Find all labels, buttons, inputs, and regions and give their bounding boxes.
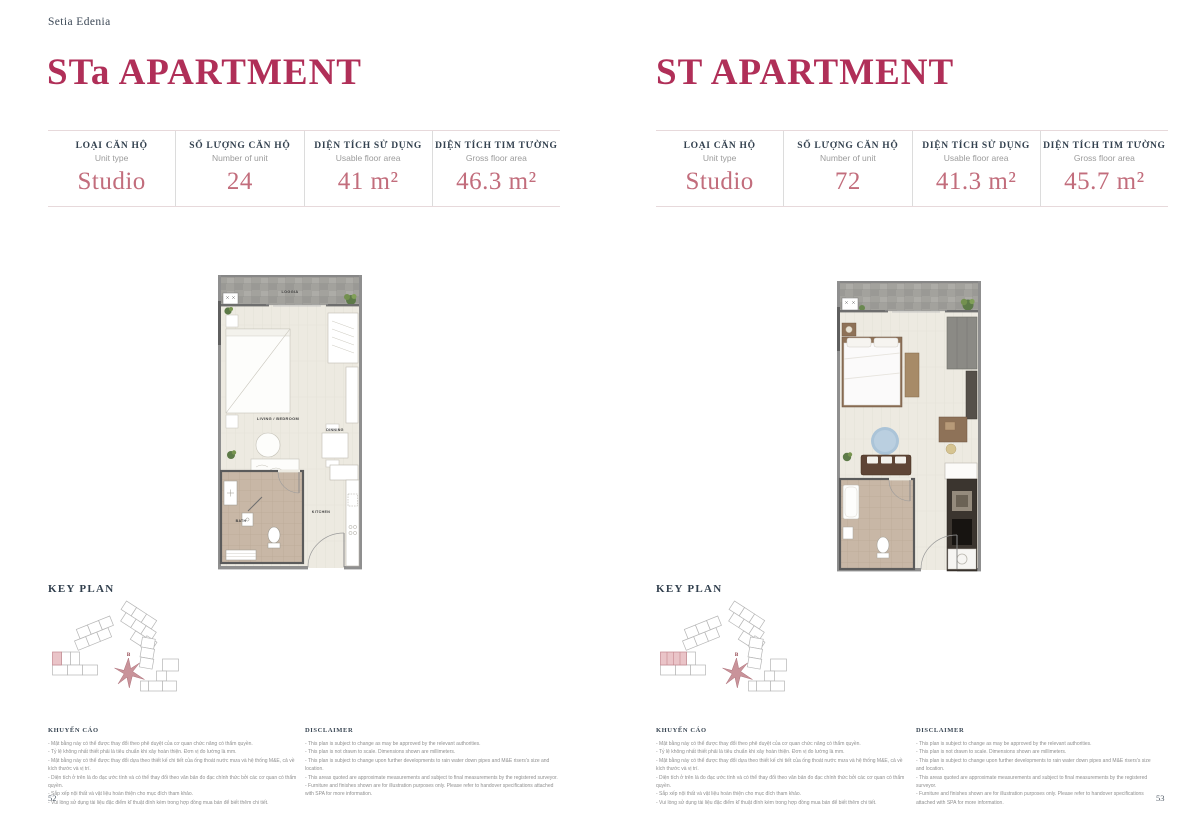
floorplan-sta-svg: LOGGIA: [218, 271, 362, 573]
spec-label-vi: DIỆN TÍCH TIM TƯỜNG: [433, 141, 560, 151]
spec-usable-area: DIỆN TÍCH SỬ DỤNG Usable floor area 41.3…: [912, 131, 1040, 206]
floorplan-st: [837, 277, 981, 580]
spec-value: 45.7 m²: [1041, 168, 1168, 196]
spec-label-en: Unit type: [656, 153, 783, 163]
disclaimer-en: DISCLAIMER - This plan is subject to cha…: [916, 727, 1160, 807]
keyplan-title: KEY PLAN: [656, 583, 723, 595]
spec-value: 46.3 m²: [433, 168, 560, 196]
floorplan-st-svg: [837, 277, 981, 575]
bathroom: BATH: [221, 470, 303, 563]
page-st-apartment: ST APARTMENT LOẠI CĂN HỘ Unit type Studi…: [600, 0, 1200, 839]
disclaimer-vi-text: - Mặt bằng này có thể được thay đổi theo…: [48, 740, 298, 807]
page-number: 52: [48, 793, 57, 803]
toilet: [877, 537, 889, 553]
compass-icon: B: [723, 653, 753, 688]
loggia: LOGGIA: [221, 275, 359, 305]
disclaimer-vi: KHUYẾN CÁO - Mặt bằng này có thể được th…: [48, 727, 298, 807]
spec-label-vi: DIỆN TÍCH SỬ DỤNG: [913, 141, 1040, 151]
cabinet: [346, 367, 358, 423]
spec-value: 72: [784, 168, 911, 196]
spec-label-vi: DIỆN TÍCH SỬ DỤNG: [305, 141, 432, 151]
keyplan-highlight: [53, 652, 62, 665]
compass-north-label: B: [735, 653, 739, 658]
bathtub: [843, 485, 859, 519]
keyplan-title: KEY PLAN: [48, 583, 115, 595]
kitchen-label: KITCHEN: [312, 510, 330, 514]
dresser: [905, 353, 919, 397]
spec-value: 41.3 m²: [913, 168, 1040, 196]
page-sta-apartment: Setia Edenia STa APARTMENT LOẠI CĂN HỘ U…: [0, 0, 600, 839]
keyplan-highlight: [661, 652, 687, 665]
spec-value: Studio: [48, 168, 175, 196]
spec-unit-count: SỐ LƯỢNG CĂN HỘ Number of unit 24: [175, 131, 303, 206]
spec-unit-type: LOẠI CĂN HỘ Unit type Studio: [48, 131, 175, 206]
bath-label: BATH: [236, 519, 247, 523]
loggia-label: LOGGIA: [281, 290, 298, 294]
spec-value: 24: [176, 168, 303, 196]
spec-label-en: Unit type: [48, 153, 175, 163]
spec-label-en: Gross floor area: [433, 153, 560, 163]
disclaimer-en-title: DISCLAIMER: [305, 727, 560, 734]
dining-label: DINNING: [326, 428, 344, 432]
brochure-spread: Setia Edenia STa APARTMENT LOẠI CĂN HỘ U…: [0, 0, 1200, 839]
page-title: ST APARTMENT: [656, 54, 954, 91]
round-table: [256, 433, 280, 457]
kitchen: [945, 463, 977, 571]
disclaimer-vi-title: KHUYẾN CÁO: [656, 727, 906, 734]
tv-console: [966, 371, 977, 419]
bathroom: [840, 478, 914, 569]
keyplan-sta-svg: B: [42, 597, 187, 701]
disclaimer-en-title: DISCLAIMER: [916, 727, 1160, 734]
spec-label-en: Number of unit: [176, 153, 303, 163]
sofa: [861, 455, 911, 475]
stool: [946, 444, 956, 454]
wardrobe: [328, 313, 358, 363]
rug: [871, 427, 899, 455]
spec-value: Studio: [656, 168, 783, 196]
spec-table: LOẠI CĂN HỘ Unit type Studio SỐ LƯỢNG CĂ…: [656, 130, 1168, 207]
spec-unit-count: SỐ LƯỢNG CĂN HỘ Number of unit 72: [783, 131, 911, 206]
disclaimer-en-text: - This plan is subject to change as may …: [305, 740, 560, 799]
page-number: 53: [1156, 793, 1165, 803]
spec-label-vi: SỐ LƯỢNG CĂN HỘ: [784, 141, 911, 151]
toilet: [268, 527, 280, 543]
spec-label-vi: LOẠI CĂN HỘ: [48, 141, 175, 151]
compass-north-label: B: [127, 653, 131, 658]
keyplan-buildings: [53, 601, 179, 691]
spec-gross-area: DIỆN TÍCH TIM TƯỜNG Gross floor area 45.…: [1040, 131, 1168, 206]
disclaimer-en-text: - This plan is subject to change as may …: [916, 740, 1160, 807]
spec-label-vi: DIỆN TÍCH TIM TƯỜNG: [1041, 141, 1168, 151]
spec-gross-area: DIỆN TÍCH TIM TƯỜNG Gross floor area 46.…: [432, 131, 560, 206]
spec-label-en: Usable floor area: [913, 153, 1040, 163]
compass-icon: B: [115, 653, 145, 688]
disclaimer-vi: KHUYẾN CÁO - Mặt bằng này có thể được th…: [656, 727, 906, 807]
floorplan-sta: LOGGIA: [218, 271, 362, 578]
page-title: STa APARTMENT: [47, 54, 362, 91]
disclaimer-en: DISCLAIMER - This plan is subject to cha…: [305, 727, 560, 799]
spec-usable-area: DIỆN TÍCH SỬ DỤNG Usable floor area 41 m…: [304, 131, 432, 206]
loggia: [840, 281, 978, 311]
keyplan-st: B: [650, 597, 795, 706]
disclaimer-vi-text: - Mặt bằng này có thể được thay đổi theo…: [656, 740, 906, 807]
keyplan-sta: B: [42, 597, 187, 706]
brand-label: Setia Edenia: [48, 16, 111, 28]
spec-label-en: Gross floor area: [1041, 153, 1168, 163]
keyplan-st-svg: B: [650, 597, 795, 701]
spec-unit-type: LOẠI CĂN HỘ Unit type Studio: [656, 131, 783, 206]
keyplan-buildings: [661, 601, 787, 691]
bed: [226, 315, 290, 428]
spec-label-vi: SỐ LƯỢNG CĂN HỘ: [176, 141, 303, 151]
spec-label-en: Number of unit: [784, 153, 911, 163]
wardrobe: [947, 317, 977, 369]
spec-table: LOẠI CĂN HỘ Unit type Studio SỐ LƯỢNG CĂ…: [48, 130, 560, 207]
spec-label-en: Usable floor area: [305, 153, 432, 163]
spec-label-vi: LOẠI CĂN HỘ: [656, 141, 783, 151]
spec-value: 41 m²: [305, 168, 432, 196]
living-bedroom-label: LIVING / BEDROOM: [257, 416, 299, 421]
disclaimer-vi-title: KHUYẾN CÁO: [48, 727, 298, 734]
